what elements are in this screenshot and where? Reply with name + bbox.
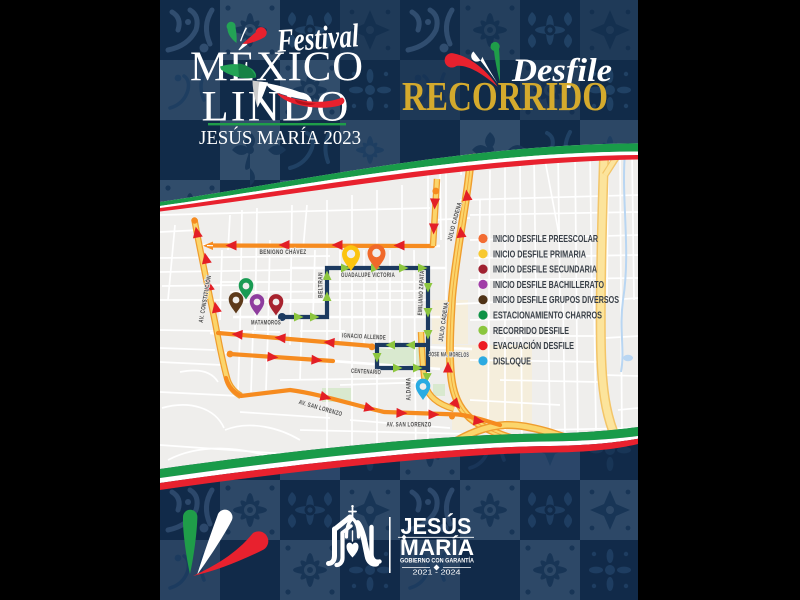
svg-text:ESTACIONAMIENTO CHARROS: ESTACIONAMIENTO CHARROS bbox=[493, 311, 602, 322]
svg-text:2021 - 2024: 2021 - 2024 bbox=[413, 570, 461, 577]
svg-text:MATAMOROS: MATAMOROS bbox=[251, 320, 281, 327]
svg-text:INICIO DESFILE SECUNDARIA: INICIO DESFILE SECUNDARIA bbox=[493, 265, 597, 276]
svg-text:DISLOQUE: DISLOQUE bbox=[493, 356, 531, 367]
svg-text:MARÍA: MARÍA bbox=[400, 535, 474, 560]
svg-text:JESÚS MARÍA 2023: JESÚS MARÍA 2023 bbox=[199, 125, 361, 149]
svg-text:GOBIERNO CON GARANTÍA: GOBIERNO CON GARANTÍA bbox=[400, 556, 474, 565]
svg-text:INICIO DESFILE GRUPOS DIVERSOS: INICIO DESFILE GRUPOS DIVERSOS bbox=[493, 295, 619, 306]
svg-text:RECORRIDO DESFILE: RECORRIDO DESFILE bbox=[493, 326, 569, 337]
svg-text:AV. SAN LORENZO: AV. SAN LORENZO bbox=[387, 422, 432, 429]
svg-text:ALDAMA: ALDAMA bbox=[406, 377, 413, 400]
svg-text:JOSE MA. MORELOS: JOSE MA. MORELOS bbox=[429, 351, 469, 359]
svg-text:INICIO DESFILE BACHILLERATO: INICIO DESFILE BACHILLERATO bbox=[493, 280, 604, 291]
svg-text:BELTRAN: BELTRAN bbox=[318, 272, 325, 298]
svg-text:BENIGNO CHÁVEZ: BENIGNO CHÁVEZ bbox=[260, 247, 307, 256]
svg-text:INICIO DESFILE PREESCOLAR: INICIO DESFILE PREESCOLAR bbox=[493, 234, 599, 245]
svg-text:GUADALUPE VICTORIA: GUADALUPE VICTORIA bbox=[341, 272, 395, 279]
svg-text:RECORRIDO: RECORRIDO bbox=[402, 73, 608, 119]
svg-text:INICIO DESFILE PRIMARIA: INICIO DESFILE PRIMARIA bbox=[493, 249, 586, 260]
svg-text:EVACUACIÓN DESFILE: EVACUACIÓN DESFILE bbox=[493, 339, 574, 352]
